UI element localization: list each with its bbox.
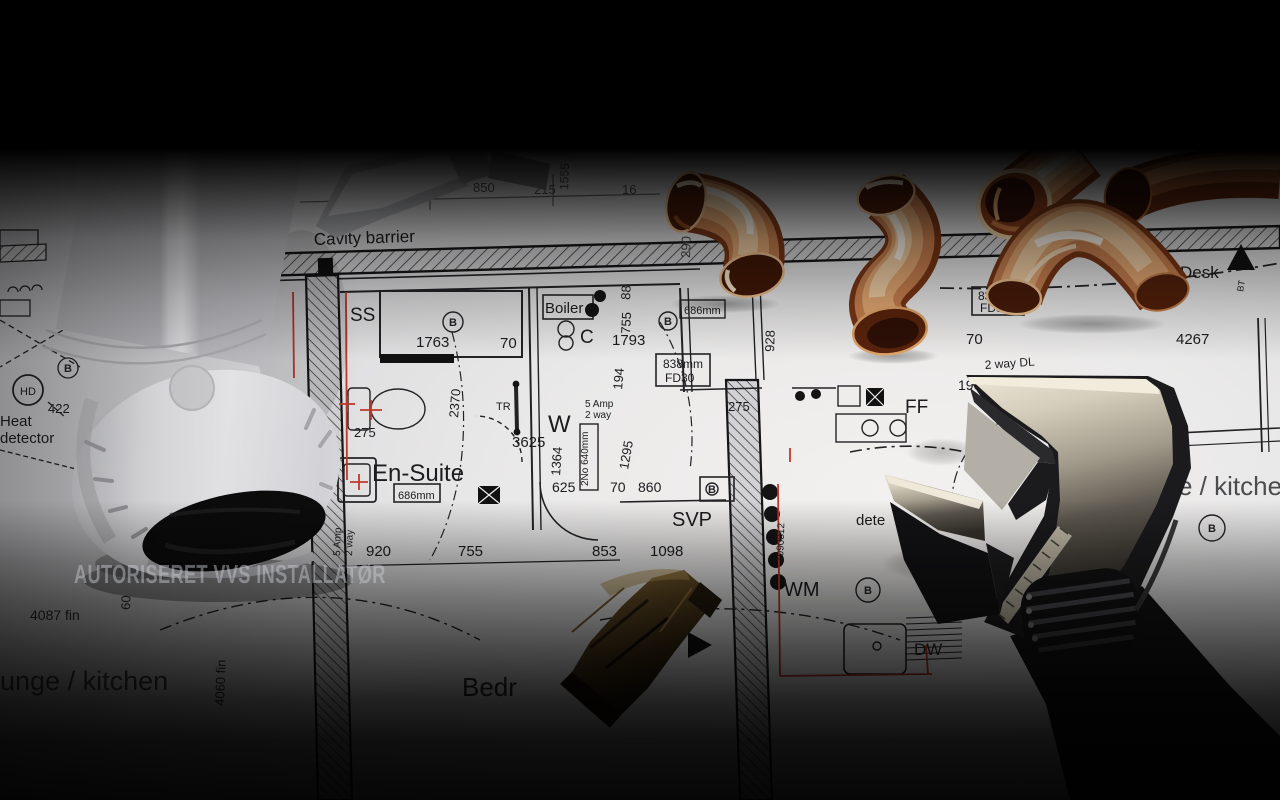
svg-text:AUTORISERET VVS INSTALLATØR: AUTORISERET VVS INSTALLATØR bbox=[74, 560, 386, 589]
